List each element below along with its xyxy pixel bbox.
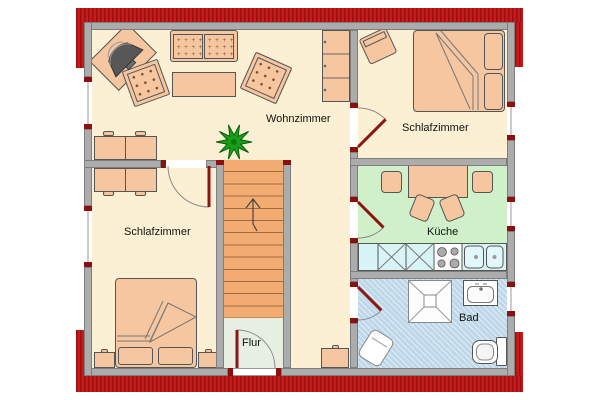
- room-label-bedroom-lower: Schlafzimmer: [124, 226, 191, 238]
- dresser-knob: [332, 345, 339, 349]
- wall-right: [507, 231, 515, 282]
- door-opening: [350, 202, 358, 238]
- wall-right: [507, 22, 515, 102]
- room-label-bathroom: Bad: [459, 312, 479, 324]
- window: [507, 287, 515, 311]
- roof-strip-top-right: [515, 22, 523, 67]
- wall-left: [84, 267, 92, 376]
- roof-strip-bottom-left: [76, 330, 84, 376]
- nightstand: [94, 352, 115, 368]
- wall-interior: [350, 323, 358, 368]
- sideboard-knob: [135, 131, 146, 136]
- dresser: [321, 348, 349, 368]
- sideboard-upper: [94, 136, 157, 160]
- entrance-door-opening: [233, 368, 276, 376]
- staircase: [224, 160, 283, 318]
- window: [84, 211, 92, 262]
- pillow: [118, 347, 153, 365]
- chair: [472, 171, 493, 193]
- coffee-table: [172, 72, 236, 97]
- dining-table: [408, 164, 468, 198]
- room-label-bedroom-upper: Schlafzimmer: [402, 122, 469, 134]
- wall-bedroom-kitchen: [350, 158, 507, 166]
- sofa: [170, 30, 238, 62]
- nightstand-knob: [205, 349, 212, 353]
- wardrobe: [322, 30, 350, 102]
- sofa-cushion: [204, 34, 234, 59]
- sideboard-lower: [94, 168, 157, 192]
- armchair-cushion: [245, 57, 287, 99]
- door-opening: [350, 287, 358, 318]
- wall-interior: [350, 30, 358, 103]
- wall-bottom: [281, 368, 515, 376]
- roof-band-top: [76, 8, 523, 22]
- door-opening: [166, 160, 206, 168]
- wall-right: [507, 316, 515, 376]
- floor-plan: Wohnzimmer Schlafzimmer Küche Bad Schlaf…: [0, 0, 600, 400]
- pillow: [158, 347, 193, 365]
- sideboard-knob: [135, 191, 146, 196]
- door-opening: [350, 108, 358, 147]
- wall-living-bedroom: [84, 160, 161, 168]
- basket-line: [372, 337, 388, 347]
- kitchen-counter: [358, 243, 507, 271]
- wall-stairs-right: [283, 160, 291, 368]
- chair: [381, 171, 402, 193]
- sideboard-knob: [103, 191, 114, 196]
- armchair-cushion: [127, 64, 165, 102]
- window: [507, 107, 515, 135]
- sideboard-knob: [103, 131, 114, 136]
- wall-bottom: [84, 368, 228, 376]
- room-label-kitchen: Küche: [427, 226, 458, 238]
- wall-top: [84, 22, 515, 30]
- window: [507, 202, 515, 226]
- room-label-hallway: Flur: [242, 337, 261, 349]
- roof-band-bottom: [76, 376, 523, 392]
- wall-stairs-left: [216, 160, 224, 368]
- room-label-living-room: Wohnzimmer: [266, 113, 331, 125]
- wall-kitchen-bath: [350, 271, 507, 279]
- wall-left: [84, 22, 92, 77]
- roof-strip-bottom-right: [515, 332, 523, 376]
- roof-strip-top-left: [76, 22, 84, 68]
- sofa-cushion: [173, 34, 203, 59]
- stair-wall-cap: [283, 160, 291, 165]
- nightstand-knob: [101, 349, 108, 353]
- pillow: [484, 33, 503, 70]
- stair-wall-cap: [216, 160, 224, 165]
- window: [84, 82, 92, 124]
- pillow: [484, 73, 503, 110]
- wall-right: [507, 140, 515, 197]
